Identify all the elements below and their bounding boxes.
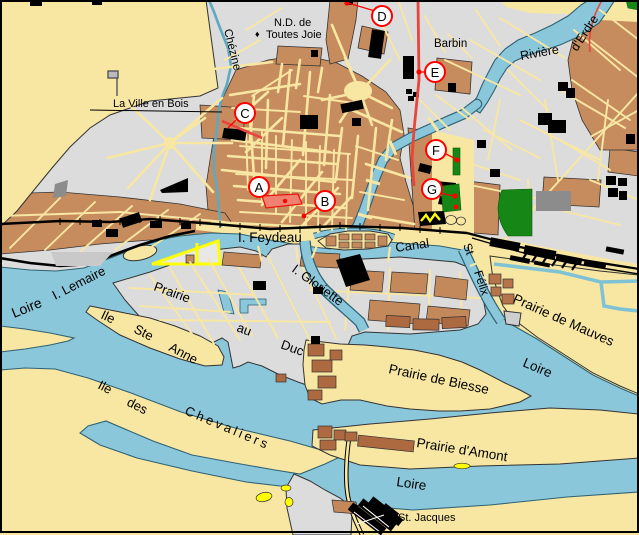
svg-text:St. Jacques: St. Jacques: [398, 512, 456, 524]
svg-text:G: G: [427, 182, 437, 197]
svg-text:La Ville en Bois: La Ville en Bois: [113, 98, 189, 110]
svg-text:Barbin: Barbin: [434, 38, 467, 50]
svg-text:A: A: [255, 180, 264, 195]
svg-text:♦: ♦: [255, 29, 260, 39]
svg-text:N.D. de: N.D. de: [274, 17, 311, 29]
svg-text:Toutes Joie: Toutes Joie: [266, 29, 322, 41]
svg-text:F: F: [432, 143, 440, 158]
svg-text:E: E: [431, 65, 440, 80]
svg-text:B: B: [321, 194, 330, 209]
svg-text:C: C: [240, 106, 249, 121]
svg-text:D: D: [377, 9, 386, 24]
svg-text:I. Feydeau: I. Feydeau: [238, 230, 302, 245]
